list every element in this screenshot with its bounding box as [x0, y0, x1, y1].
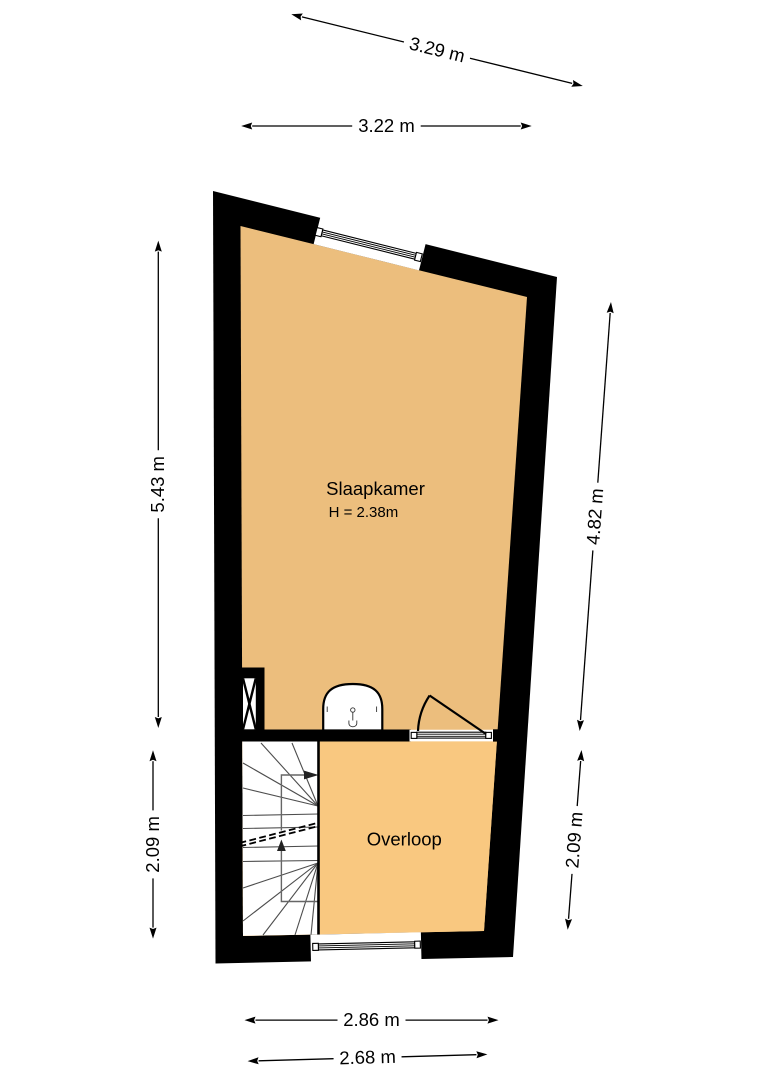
svg-text:3.22 m: 3.22 m	[358, 115, 415, 136]
svg-text:2.68 m: 2.68 m	[339, 1046, 396, 1069]
svg-text:H = 2.38m: H = 2.38m	[329, 504, 399, 521]
svg-text:Slaapkamer: Slaapkamer	[326, 478, 425, 499]
svg-text:4.82 m: 4.82 m	[582, 488, 607, 546]
svg-text:2.09 m: 2.09 m	[142, 816, 163, 873]
svg-text:2.86 m: 2.86 m	[343, 1009, 400, 1030]
svg-text:5.43 m: 5.43 m	[147, 456, 168, 513]
svg-text:2.09 m: 2.09 m	[561, 811, 586, 869]
svg-text:Overloop: Overloop	[367, 828, 442, 849]
